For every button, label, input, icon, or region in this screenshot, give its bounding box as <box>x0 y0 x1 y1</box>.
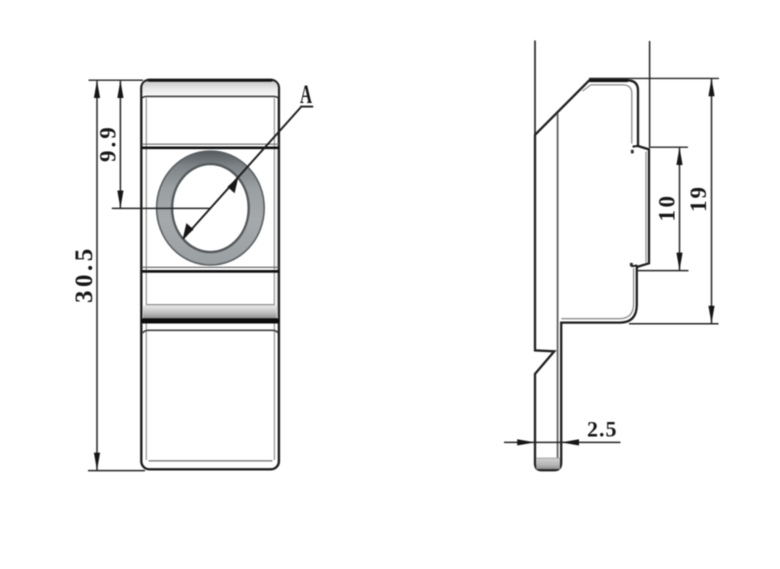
svg-text:10: 10 <box>655 194 680 222</box>
svg-text:A: A <box>300 80 312 109</box>
svg-text:19: 19 <box>686 185 711 212</box>
svg-text:30.5: 30.5 <box>71 245 98 303</box>
svg-text:2.5: 2.5 <box>587 417 618 442</box>
svg-text:9.9: 9.9 <box>96 124 121 162</box>
